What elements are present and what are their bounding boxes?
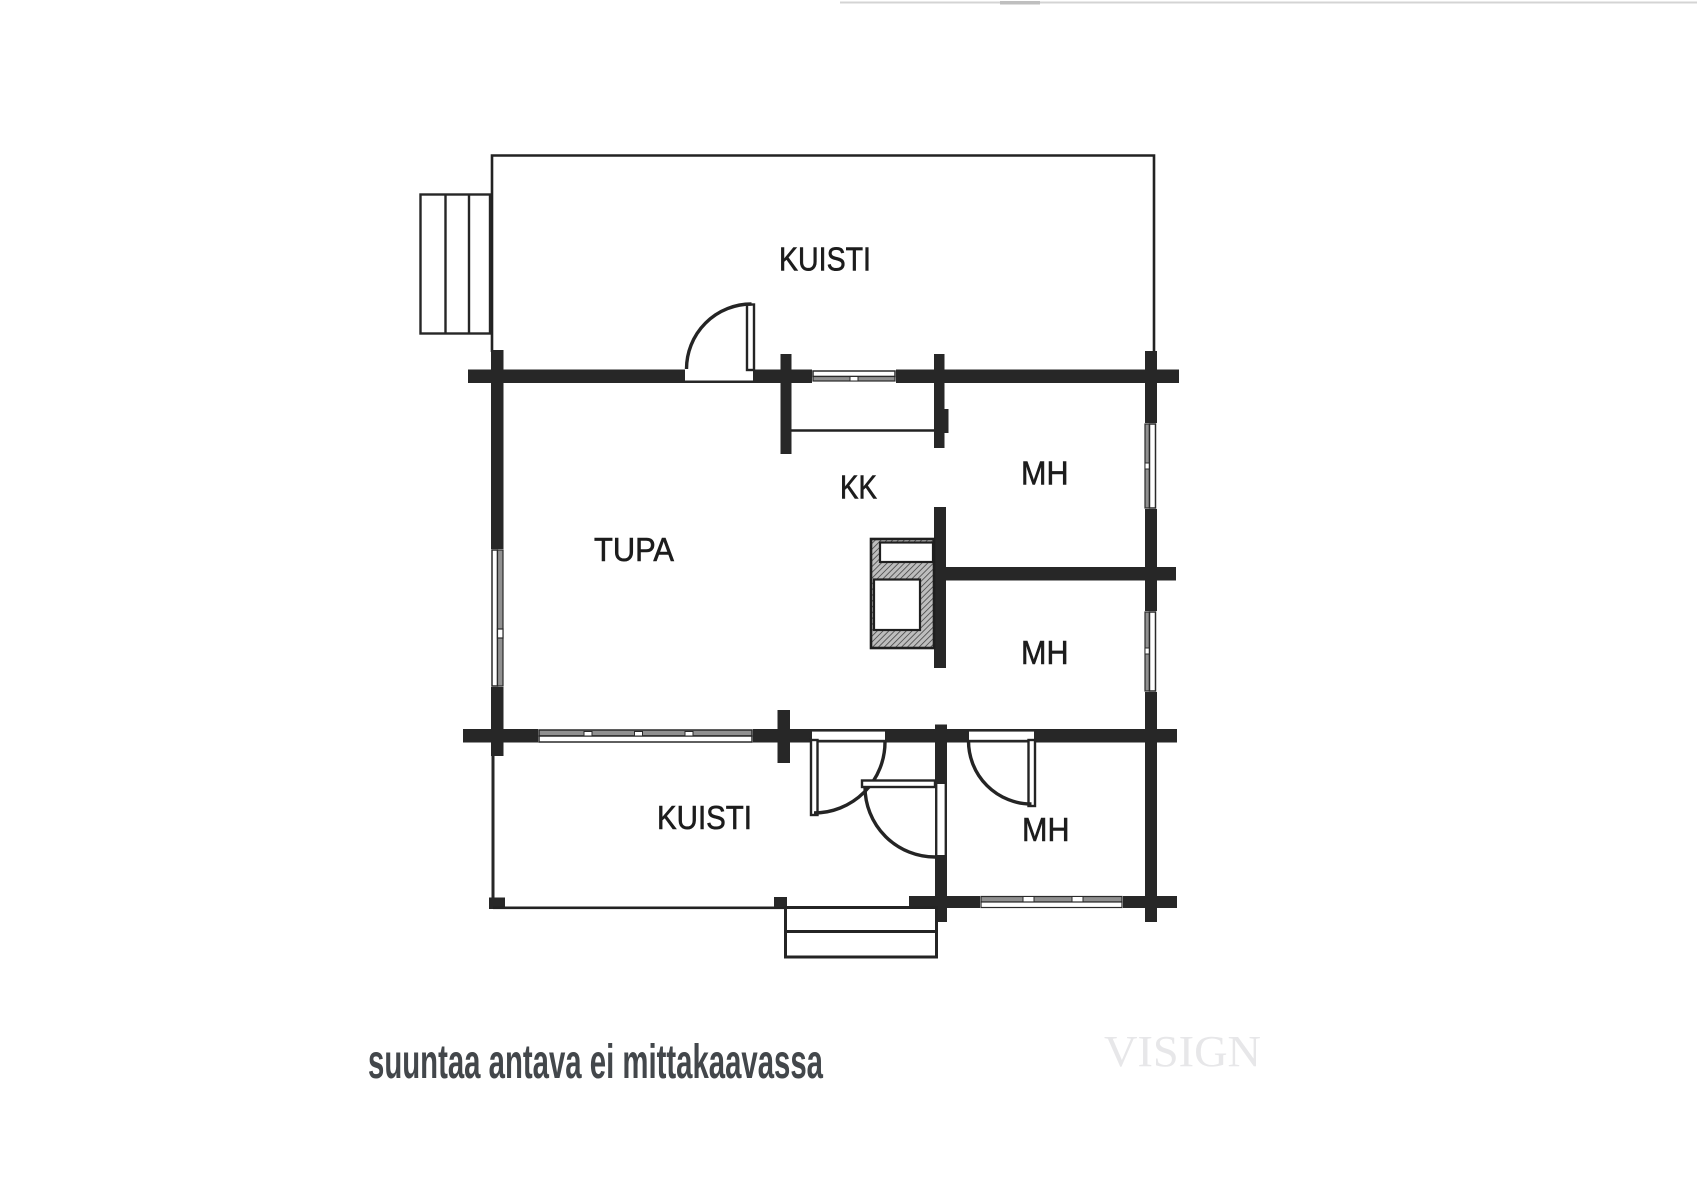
- svg-text:KUISTI: KUISTI: [657, 799, 752, 836]
- svg-text:KUISTI: KUISTI: [779, 241, 871, 278]
- svg-text:KK: KK: [840, 469, 877, 506]
- svg-text:TUPA: TUPA: [594, 531, 674, 568]
- svg-text:VISIGN: VISIGN: [1104, 1027, 1261, 1076]
- svg-text:MH: MH: [1022, 811, 1070, 848]
- svg-text:MH: MH: [1021, 455, 1069, 492]
- svg-text:MH: MH: [1021, 634, 1069, 671]
- svg-text:suuntaa antava ei mittakaavass: suuntaa antava ei mittakaavassa: [368, 1036, 823, 1089]
